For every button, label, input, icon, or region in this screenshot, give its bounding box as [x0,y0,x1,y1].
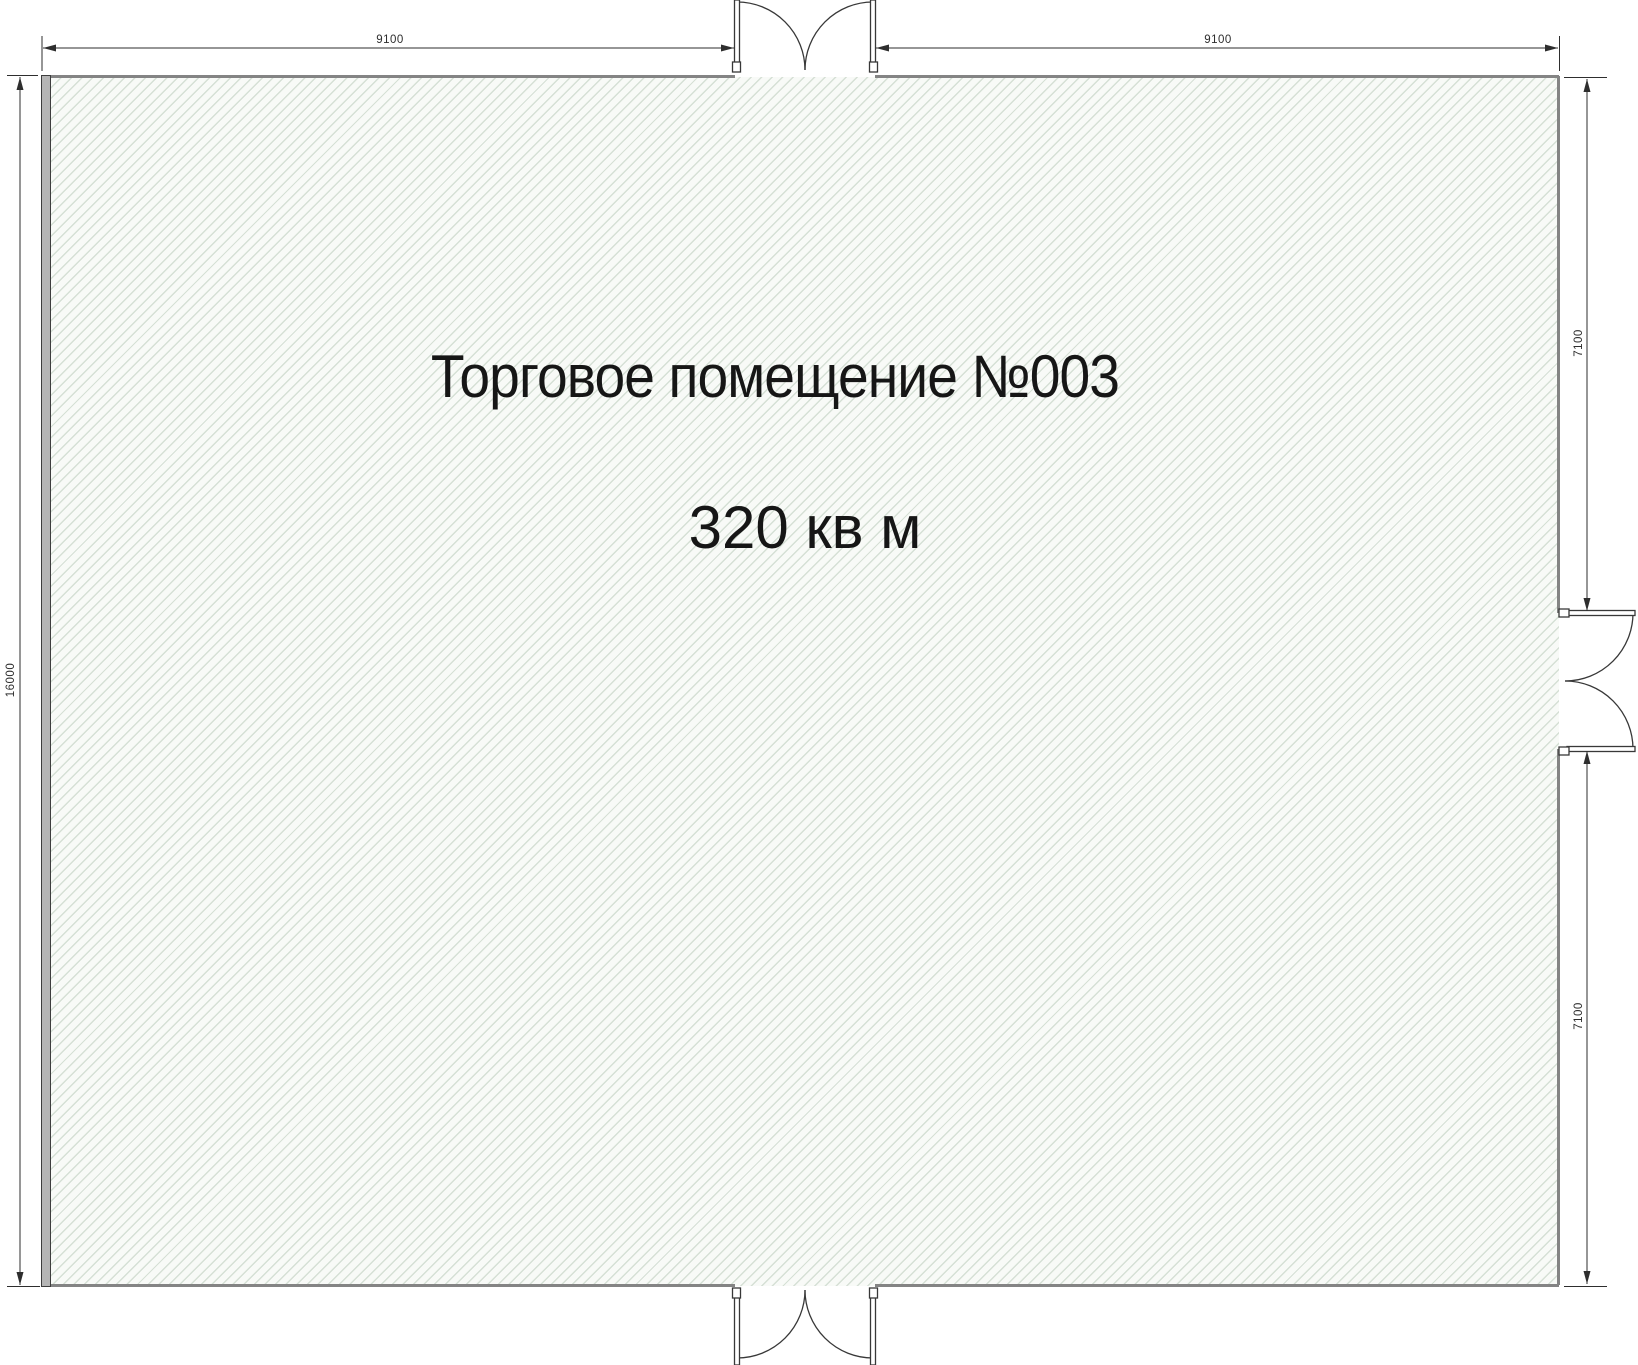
door-jamb [733,1288,741,1298]
door-leaf [871,0,876,64]
plan-linework [0,0,1638,1365]
door-leaf [735,1296,740,1365]
door-swing-arc [1565,681,1633,749]
dim-label-top-right: 9100 [1178,33,1258,47]
door-swing-arc [737,2,805,70]
bottom-double-door [733,1288,878,1365]
door-jamb [733,62,741,72]
door-jamb [1559,609,1569,617]
dim-label-top-left: 9100 [350,33,430,47]
door-swing-arc [805,1290,873,1358]
door-jamb [870,1288,878,1298]
top-double-door [733,0,878,72]
door-leaf [1567,611,1635,616]
room-area: 320 кв м [50,495,1560,561]
door-leaf [1567,747,1635,752]
room-title-text: Торговое помещение №003 [431,344,1119,410]
dim-label-left: 16000 [4,640,18,720]
door-swing-arc [805,2,873,70]
left-wall [42,76,51,1287]
floor-plan-canvas: 9100 9100 16000 7100 7100 Торговое помещ… [0,0,1638,1365]
arrow-down-icon [17,1272,24,1285]
arrow-up-icon [1584,79,1591,92]
door-leaf [871,1296,876,1365]
door-swing-arc [1565,613,1633,681]
right-double-door [1559,609,1635,755]
arrow-left-icon [43,45,56,52]
arrow-right-icon [721,45,734,52]
door-swing-arc [737,1290,805,1358]
door-jamb [870,62,878,72]
arrow-down-icon [1584,598,1591,611]
dim-label-right-upper: 7100 [1572,303,1586,383]
arrow-up-icon [1584,751,1591,764]
arrow-down-icon [1584,1271,1591,1284]
arrow-left-icon [876,45,889,52]
door-leaf [735,0,740,64]
door-jamb [1559,747,1569,755]
dim-label-right-lower: 7100 [1572,976,1586,1056]
walls [42,76,1559,1286]
arrow-right-icon [1545,45,1558,52]
room-title: Торговое помещение №003 [20,344,1530,410]
arrow-up-icon [17,77,24,90]
